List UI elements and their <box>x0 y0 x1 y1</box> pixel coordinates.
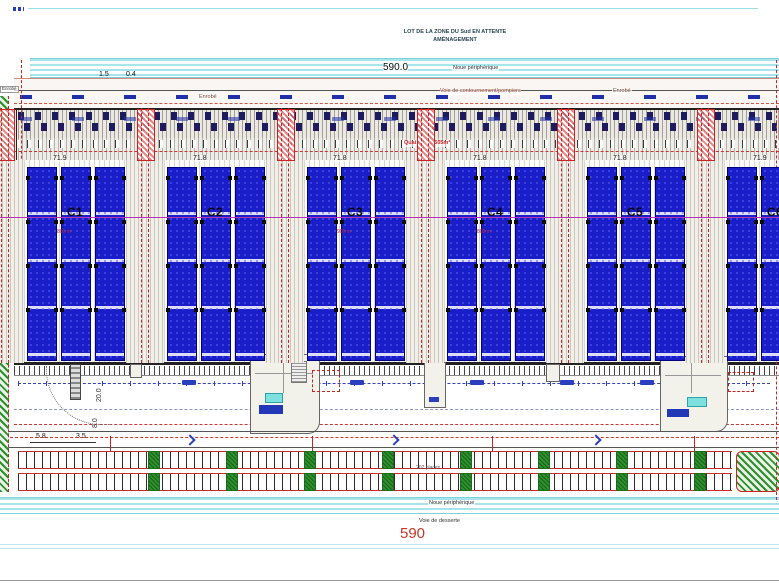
enrobe-left-box: Enrobé <box>0 86 19 93</box>
rack-block <box>727 167 757 361</box>
rack-block <box>587 167 617 361</box>
tech-box-east <box>546 364 560 382</box>
north-frame-line <box>28 8 758 9</box>
rack-block <box>235 167 265 361</box>
firewall-tower <box>417 109 435 161</box>
yard-dim-line-h <box>30 442 96 443</box>
office-west-blue-canopy <box>259 405 283 414</box>
plan-title-line1: LOT DE LA ZONE DU Sud EN ATTENTE <box>348 30 562 36</box>
office-block-east <box>660 356 728 432</box>
rack-block <box>761 167 779 361</box>
guardrail-line <box>14 90 779 91</box>
firewall-line <box>428 108 429 363</box>
green-island-east <box>736 451 779 492</box>
firewall-tower <box>277 109 295 161</box>
parking-tree <box>382 451 394 469</box>
overall-dim-bottom: 590 <box>400 526 425 541</box>
firewall-tower <box>557 109 575 161</box>
firewall-line <box>148 108 149 363</box>
office-east-partition-h <box>665 375 721 376</box>
firewall-line <box>708 108 709 363</box>
north-survey-marks <box>13 7 24 11</box>
office-east-blue-canopy <box>667 409 689 417</box>
yard-tag-2 <box>350 380 364 385</box>
yard-tag-5 <box>640 380 654 385</box>
cell-dim-label: 71.8 <box>193 155 207 162</box>
parking-tree <box>538 451 550 469</box>
parking-entry-2 <box>312 436 313 452</box>
parking-tree <box>148 451 160 469</box>
firewall-line <box>141 108 142 363</box>
rack-block <box>655 167 685 361</box>
yard-tag-1 <box>182 380 196 385</box>
cell-label: C4 <box>465 206 525 218</box>
rack-block <box>95 167 125 361</box>
parking-tree <box>382 473 394 491</box>
cell-dim-label: 71.9 <box>53 155 67 162</box>
parking-tree <box>694 451 706 469</box>
parking-tree <box>616 473 628 491</box>
site-plan: LOT DE LA ZONE DU Sud EN ATTENTE AMÉNAGE… <box>0 0 779 584</box>
truck-row-docks <box>20 117 775 121</box>
rack-block <box>307 167 337 361</box>
cell-dim-label: 71.8 <box>473 155 487 162</box>
enrobe-label-east: Enrobé <box>612 89 632 95</box>
quai-dashed-line <box>14 151 779 152</box>
cell-dim-label: 71.8 <box>333 155 347 162</box>
fire-zone-box-east <box>728 372 754 392</box>
firewall-tower <box>697 109 715 161</box>
parking-tree <box>460 451 472 469</box>
parking-tree <box>538 473 550 491</box>
tech-box-center <box>424 362 446 408</box>
firewall-line <box>421 108 422 363</box>
firewall-line <box>288 108 289 363</box>
road-edge-line <box>14 103 779 104</box>
quai-doors <box>16 140 779 148</box>
overall-dim-top: 590.0 <box>383 63 408 73</box>
cell-label: C5 <box>605 206 665 218</box>
yard-tag-4 <box>560 380 574 385</box>
firewall-line <box>1 108 2 363</box>
office-west-stair <box>291 361 307 383</box>
cell-area-label: 800 m <box>477 230 491 235</box>
parking-entry-1 <box>110 436 111 452</box>
firewall-line <box>281 108 282 363</box>
parking-tree <box>616 451 628 469</box>
dim-1-5: 1.5 <box>99 71 109 78</box>
cell-aisle <box>0 160 24 363</box>
firewall-line <box>701 108 702 363</box>
firewall-tower <box>137 109 155 161</box>
rack-block <box>515 167 545 361</box>
noue-top-label: Noue périphérique <box>452 66 499 72</box>
ring-road <box>14 78 779 109</box>
firewall-line <box>568 108 569 363</box>
firewall-line <box>8 108 9 363</box>
rack-block <box>27 167 57 361</box>
service-road-top <box>0 431 779 432</box>
cell-aisle <box>406 160 444 363</box>
parking-count-label: 202 places <box>416 466 440 471</box>
parking-entry-3 <box>492 436 493 452</box>
parking-tree <box>148 473 160 491</box>
sheet-edge-line <box>0 580 779 581</box>
tech-box-west <box>130 364 142 378</box>
cell-area-label: 800 m <box>57 230 71 235</box>
cell-aisle <box>546 160 584 363</box>
rack-block <box>375 167 405 361</box>
rack-block <box>167 167 197 361</box>
rack-block <box>621 167 651 361</box>
cell-label: C1 <box>45 206 105 218</box>
yard-dim-ticks <box>18 381 770 386</box>
rack-block <box>341 167 371 361</box>
rack-block <box>481 167 511 361</box>
plan-title: LOT DE LA ZONE DU Sud EN ATTENTE AMÉNAGE… <box>348 30 562 43</box>
service-road-label: Voie de desserte <box>418 519 461 525</box>
south-frame-line-1 <box>0 544 779 545</box>
parking-tree <box>226 473 238 491</box>
fire-zone-box-west <box>312 370 340 392</box>
cell-aisle <box>126 160 164 363</box>
enrobe-label-mid: Enrobé <box>198 95 218 101</box>
parking-tree <box>304 473 316 491</box>
office-west-partition-v <box>283 359 284 393</box>
office-west-cyan-room <box>265 393 283 403</box>
cell-label: C3 <box>325 206 385 218</box>
parking-entry-4 <box>694 436 695 452</box>
cell-label: C6 <box>745 206 779 218</box>
truck-row-road <box>20 95 775 99</box>
cell-area-label: 900 m <box>337 230 351 235</box>
plan-title-line2: AMÉNAGEMENT <box>348 38 562 44</box>
south-frame-line-2 <box>0 548 779 549</box>
rack-block <box>61 167 91 361</box>
tech-box-center-blue <box>429 397 439 402</box>
rack-block <box>447 167 477 361</box>
firewall-line <box>561 108 562 363</box>
dim-0-4: 0.4 <box>126 71 136 78</box>
ring-road-label: Voie de contournement/pompiers <box>440 89 521 95</box>
parking-tree <box>460 473 472 491</box>
office-east-cyan-room <box>687 397 707 407</box>
office-block-west <box>250 354 320 434</box>
yard-tag-3 <box>470 380 484 385</box>
noue-band-bottom <box>0 497 779 514</box>
cell-dim-label: 71.8 <box>613 155 627 162</box>
parking-tree <box>304 451 316 469</box>
cell-aisle <box>266 160 304 363</box>
service-road-bottom <box>0 447 779 448</box>
office-east-partition-v <box>691 361 692 393</box>
parking-tree <box>226 451 238 469</box>
noue-bottom-label: Noue périphérique <box>428 501 475 507</box>
cell-dim-label: 71.9 <box>753 155 767 162</box>
parking-tree <box>694 473 706 491</box>
dock-ramp <box>70 364 81 400</box>
cell-label: C2 <box>185 206 245 218</box>
rack-block <box>201 167 231 361</box>
cell-aisle <box>686 160 724 363</box>
